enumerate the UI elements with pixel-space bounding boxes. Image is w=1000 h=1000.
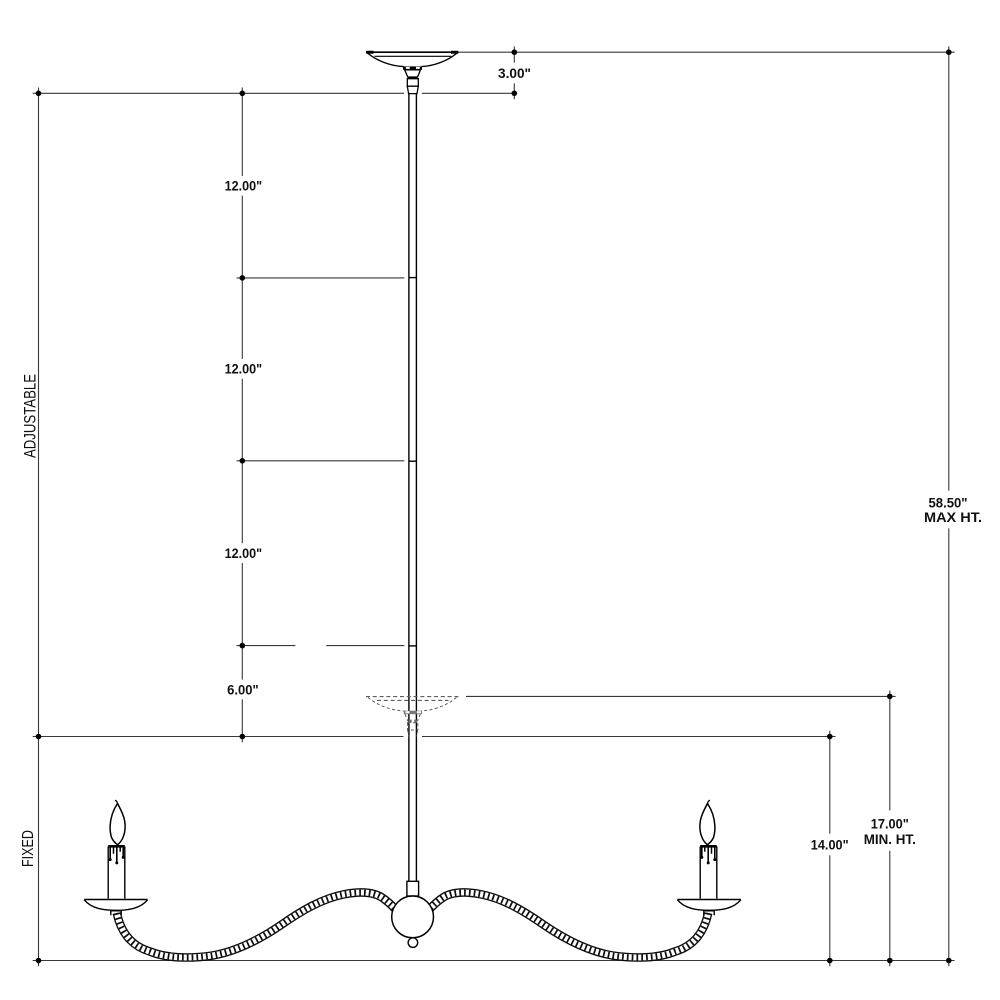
svg-text:6.00": 6.00" (227, 682, 259, 697)
svg-text:58.50": 58.50" (929, 495, 968, 510)
svg-text:MIN. HT.: MIN. HT. (864, 832, 916, 847)
svg-text:12.00": 12.00" (225, 179, 263, 194)
svg-text:ADJUSTABLE: ADJUSTABLE (21, 374, 40, 458)
svg-text:FIXED: FIXED (20, 830, 37, 867)
svg-text:12.00": 12.00" (225, 546, 263, 561)
svg-text:12.00": 12.00" (225, 362, 263, 377)
svg-text:14.00": 14.00" (811, 837, 849, 852)
svg-text:MAX HT.: MAX HT. (924, 510, 982, 525)
svg-text:3.00": 3.00" (498, 66, 531, 81)
svg-text:17.00": 17.00" (871, 816, 909, 831)
